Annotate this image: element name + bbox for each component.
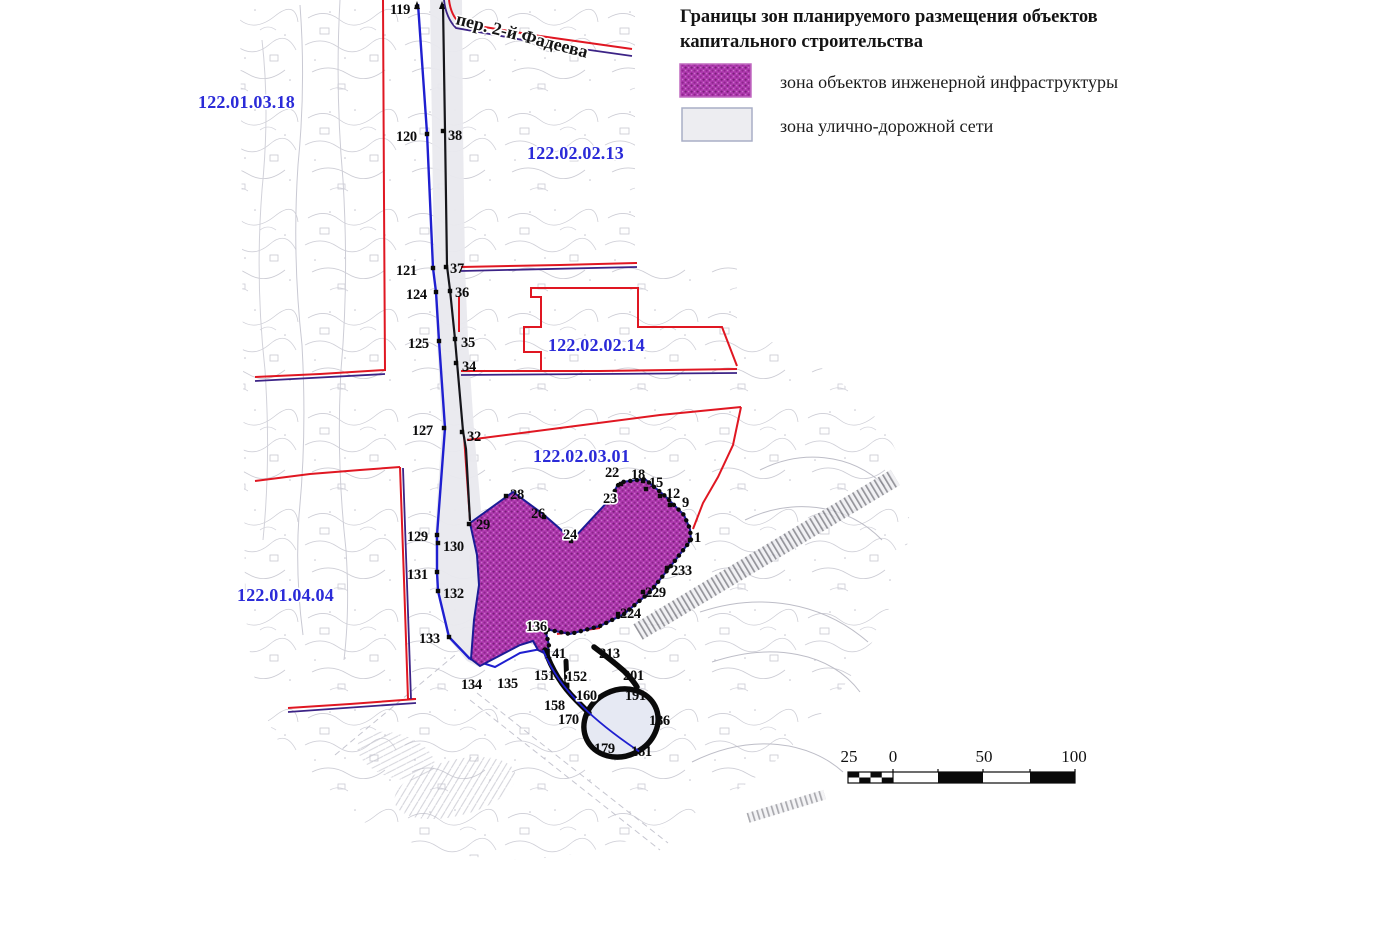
point-label-201: 201 bbox=[623, 668, 644, 684]
scale-number-0: 0 bbox=[889, 747, 898, 766]
point-marker-35 bbox=[453, 337, 457, 341]
point-label-160: 160 bbox=[576, 688, 597, 704]
point-marker-120 bbox=[425, 132, 429, 136]
point-marker-32 bbox=[460, 430, 464, 434]
zone-label-122.02.02.14: 122.02.02.14 bbox=[548, 335, 645, 355]
point-label-36: 36 bbox=[455, 285, 469, 301]
point-marker-15 bbox=[644, 487, 648, 491]
point-marker-28 bbox=[504, 494, 508, 498]
point-label-26: 26 bbox=[531, 506, 545, 522]
point-label-151: 151 bbox=[534, 668, 555, 684]
point-label-233: 233 bbox=[671, 563, 692, 579]
point-label-38: 38 bbox=[448, 128, 462, 144]
point-label-127: 127 bbox=[412, 423, 433, 439]
point-label-224: 224 bbox=[620, 606, 641, 622]
scale-number-100: 100 bbox=[1061, 747, 1087, 766]
zone-label-122.02.03.01: 122.02.03.01 bbox=[533, 446, 630, 466]
point-label-18: 18 bbox=[631, 467, 645, 483]
point-label-125: 125 bbox=[408, 336, 429, 352]
point-marker-29 bbox=[467, 522, 471, 526]
point-label-12: 12 bbox=[666, 486, 680, 502]
point-marker-1 bbox=[688, 538, 692, 542]
point-label-120: 120 bbox=[396, 129, 417, 145]
point-marker-22 bbox=[619, 482, 623, 486]
point-marker-124 bbox=[434, 290, 438, 294]
point-label-28: 28 bbox=[510, 487, 524, 503]
legend-label-street-network-zone: зона улично-дорожной сети bbox=[780, 116, 994, 136]
legend-title-line1: Границы зон планируемого размещения объе… bbox=[680, 7, 1098, 27]
point-label-213: 213 bbox=[599, 646, 620, 662]
legend-title-line2: капитального строительства bbox=[680, 32, 923, 52]
point-label-32: 32 bbox=[467, 429, 481, 445]
point-label-141: 141 bbox=[545, 646, 566, 662]
point-label-133: 133 bbox=[419, 631, 440, 647]
scale-number-50: 50 bbox=[976, 747, 993, 766]
point-label-132: 132 bbox=[443, 586, 464, 602]
point-label-1: 1 bbox=[694, 530, 701, 546]
point-marker-132 bbox=[436, 589, 440, 593]
point-label-124: 124 bbox=[406, 287, 427, 303]
point-marker-38 bbox=[441, 129, 445, 133]
point-label-15: 15 bbox=[649, 475, 663, 491]
point-label-152: 152 bbox=[566, 669, 587, 685]
scale-bar: 25050100 bbox=[841, 747, 1087, 783]
point-label-170: 170 bbox=[558, 712, 579, 728]
point-label-131: 131 bbox=[407, 567, 428, 583]
point-label-179: 179 bbox=[594, 741, 615, 757]
point-label-181: 181 bbox=[631, 744, 652, 760]
point-marker-36 bbox=[448, 289, 452, 293]
point-marker-125 bbox=[437, 339, 441, 343]
legend: Границы зон планируемого размещения объе… bbox=[680, 7, 1118, 141]
point-marker-131 bbox=[435, 570, 439, 574]
point-label-135: 135 bbox=[497, 676, 518, 692]
point-label-37: 37 bbox=[450, 261, 464, 277]
point-marker-233 bbox=[665, 566, 669, 570]
scale-bar-numbers: 25050100 bbox=[841, 747, 1087, 766]
point-label-136: 136 bbox=[526, 619, 547, 635]
legend-label-engineering-zone: зона объектов инженерной инфраструктуры bbox=[780, 72, 1118, 92]
point-label-130: 130 bbox=[443, 539, 464, 555]
point-marker-133 bbox=[447, 635, 451, 639]
scale-number-25: 25 bbox=[841, 747, 858, 766]
point-marker-121 bbox=[431, 266, 435, 270]
planning-map-page: 1191201211241251271291301311321331341353… bbox=[0, 0, 1392, 952]
point-marker-119 bbox=[415, 5, 419, 9]
point-label-229: 229 bbox=[645, 585, 666, 601]
legend-swatch-street-network-zone bbox=[682, 108, 752, 141]
point-marker-129 bbox=[435, 533, 439, 537]
point-label-121: 121 bbox=[396, 263, 417, 279]
point-marker-130 bbox=[436, 541, 440, 545]
point-label-35: 35 bbox=[461, 335, 475, 351]
zone-label-122.01.03.18: 122.01.03.18 bbox=[198, 92, 295, 112]
point-label-24: 24 bbox=[563, 527, 577, 543]
point-label-129: 129 bbox=[407, 529, 428, 545]
zone-label-122.01.04.04: 122.01.04.04 bbox=[237, 585, 334, 605]
point-label-186: 186 bbox=[649, 713, 670, 729]
point-marker-9 bbox=[668, 503, 672, 507]
point-marker-34 bbox=[454, 361, 458, 365]
zone-label-122.02.02.13: 122.02.02.13 bbox=[527, 143, 624, 163]
map-canvas: 1191201211241251271291301311321331341353… bbox=[0, 0, 1392, 952]
point-label-191: 191 bbox=[625, 688, 646, 704]
legend-swatch-engineering-zone bbox=[680, 64, 751, 97]
point-label-34: 34 bbox=[462, 359, 476, 375]
point-label-119: 119 bbox=[390, 2, 410, 18]
point-label-134: 134 bbox=[461, 677, 482, 693]
point-label-22: 22 bbox=[605, 465, 619, 481]
point-label-23: 23 bbox=[603, 491, 617, 507]
point-marker-127 bbox=[442, 426, 446, 430]
point-marker-37 bbox=[444, 265, 448, 269]
point-marker-12 bbox=[658, 494, 662, 498]
point-label-9: 9 bbox=[682, 495, 689, 511]
point-label-29: 29 bbox=[476, 517, 490, 533]
